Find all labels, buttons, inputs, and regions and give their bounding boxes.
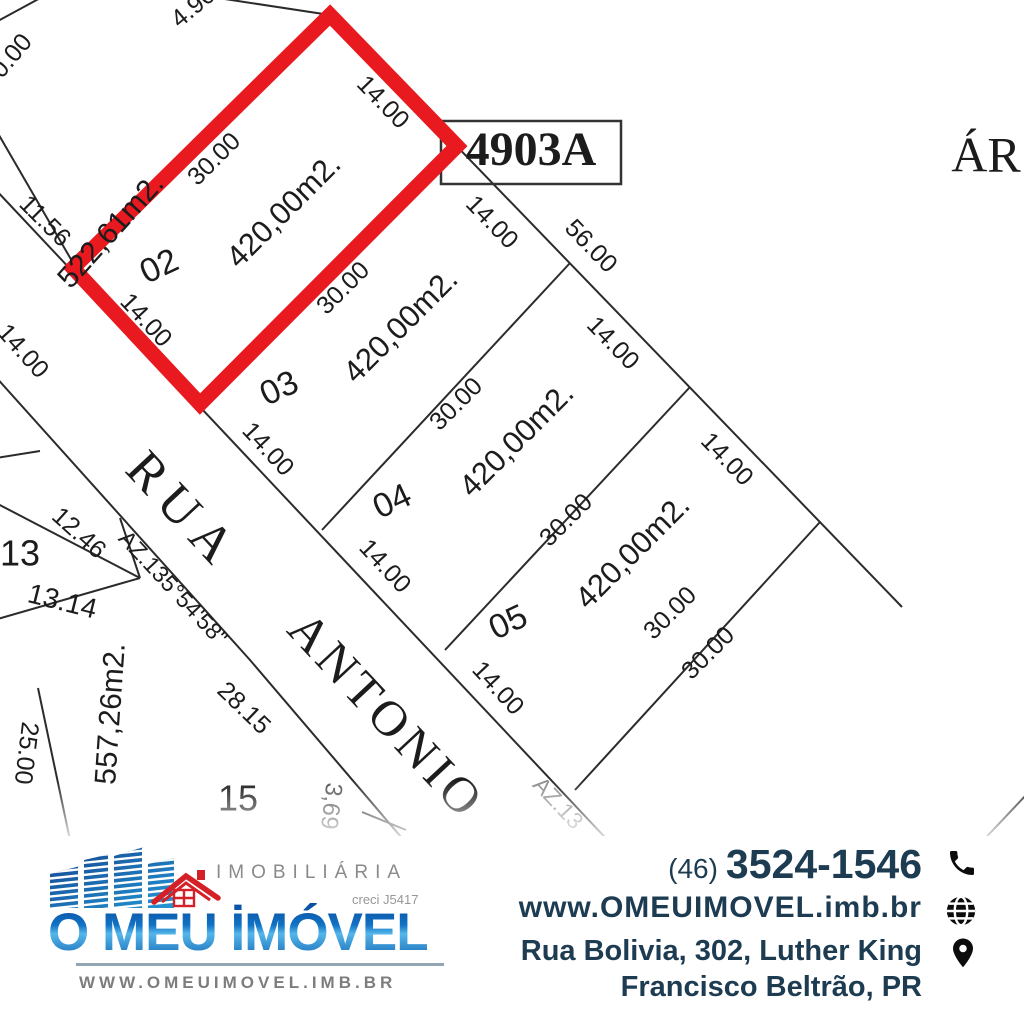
location-pin-icon <box>948 937 978 975</box>
map-label: 30.00 <box>638 581 702 645</box>
map-label: 14.00 <box>353 534 416 599</box>
map-label: 557,26m2. <box>89 642 132 786</box>
agency-logo: IMOBILIÁRIA creci J5417 O MEU İMÓVEL WWW… <box>0 836 470 1024</box>
map-label: 30.00 <box>424 372 488 436</box>
address-line-1: Rua Bolivia, 302, Luther King <box>521 935 922 968</box>
map-label: 25.00 <box>9 720 44 786</box>
map-label: 14.00 <box>460 190 524 254</box>
map-label: 14.00 <box>695 427 759 491</box>
map-label: 02 <box>134 241 184 291</box>
map-label: 13 <box>0 533 40 574</box>
map-label: 14.00 <box>0 318 54 383</box>
map-label: 4.90 <box>165 0 220 33</box>
map-label: 03 <box>254 363 304 413</box>
flyer: 4903A 30.004.90522,61m2.11.5614.000230.0… <box>0 0 1024 1024</box>
phone-number: (46)3524-1546 <box>668 841 922 888</box>
phone-main: 3524-1546 <box>726 841 922 887</box>
logo-website: WWW.OMEUIMOVEL.IMB.BR <box>79 973 396 993</box>
map-labels-under: 4903A <box>466 123 597 176</box>
map-label: 28.15 <box>212 676 276 740</box>
map-label: 14.00 <box>236 417 299 482</box>
phone-icon <box>946 847 978 879</box>
map-label: 13.14 <box>25 577 100 624</box>
map-label: 30.00 <box>0 28 38 94</box>
buildings-house-logo-icon <box>46 846 228 910</box>
map-label: 56.00 <box>559 214 623 278</box>
logo-wordmark: O MEU İMÓVEL <box>48 902 428 963</box>
map-label: 4903A <box>466 123 597 176</box>
map-label: 30.00 <box>534 488 598 552</box>
logo-tagline: IMOBILIÁRIA <box>216 862 407 884</box>
phone-area-code: (46) <box>668 853 718 884</box>
contact-block: (46)3524-1546 www.OMEUIMOVEL.imb.br Rua … <box>470 836 1024 1024</box>
map-label: 05 <box>483 597 533 647</box>
map-label: 12.46 <box>46 502 111 565</box>
map-label: 14.00 <box>466 656 529 721</box>
footer: IMOBILIÁRIA creci J5417 O MEU İMÓVEL WWW… <box>0 836 1024 1024</box>
globe-icon <box>944 894 978 928</box>
map-label: 420,00m2. <box>219 146 347 274</box>
logo-divider <box>76 963 444 966</box>
map-label: 14.00 <box>581 311 645 375</box>
map-label: 04 <box>367 476 417 526</box>
address-line-2: Francisco Beltrão, PR <box>621 971 922 1004</box>
map-label: ÁR <box>951 126 1021 182</box>
contact-website: www.OMEUIMOVEL.imb.br <box>519 891 922 925</box>
map-label: 30.00 <box>676 621 740 685</box>
